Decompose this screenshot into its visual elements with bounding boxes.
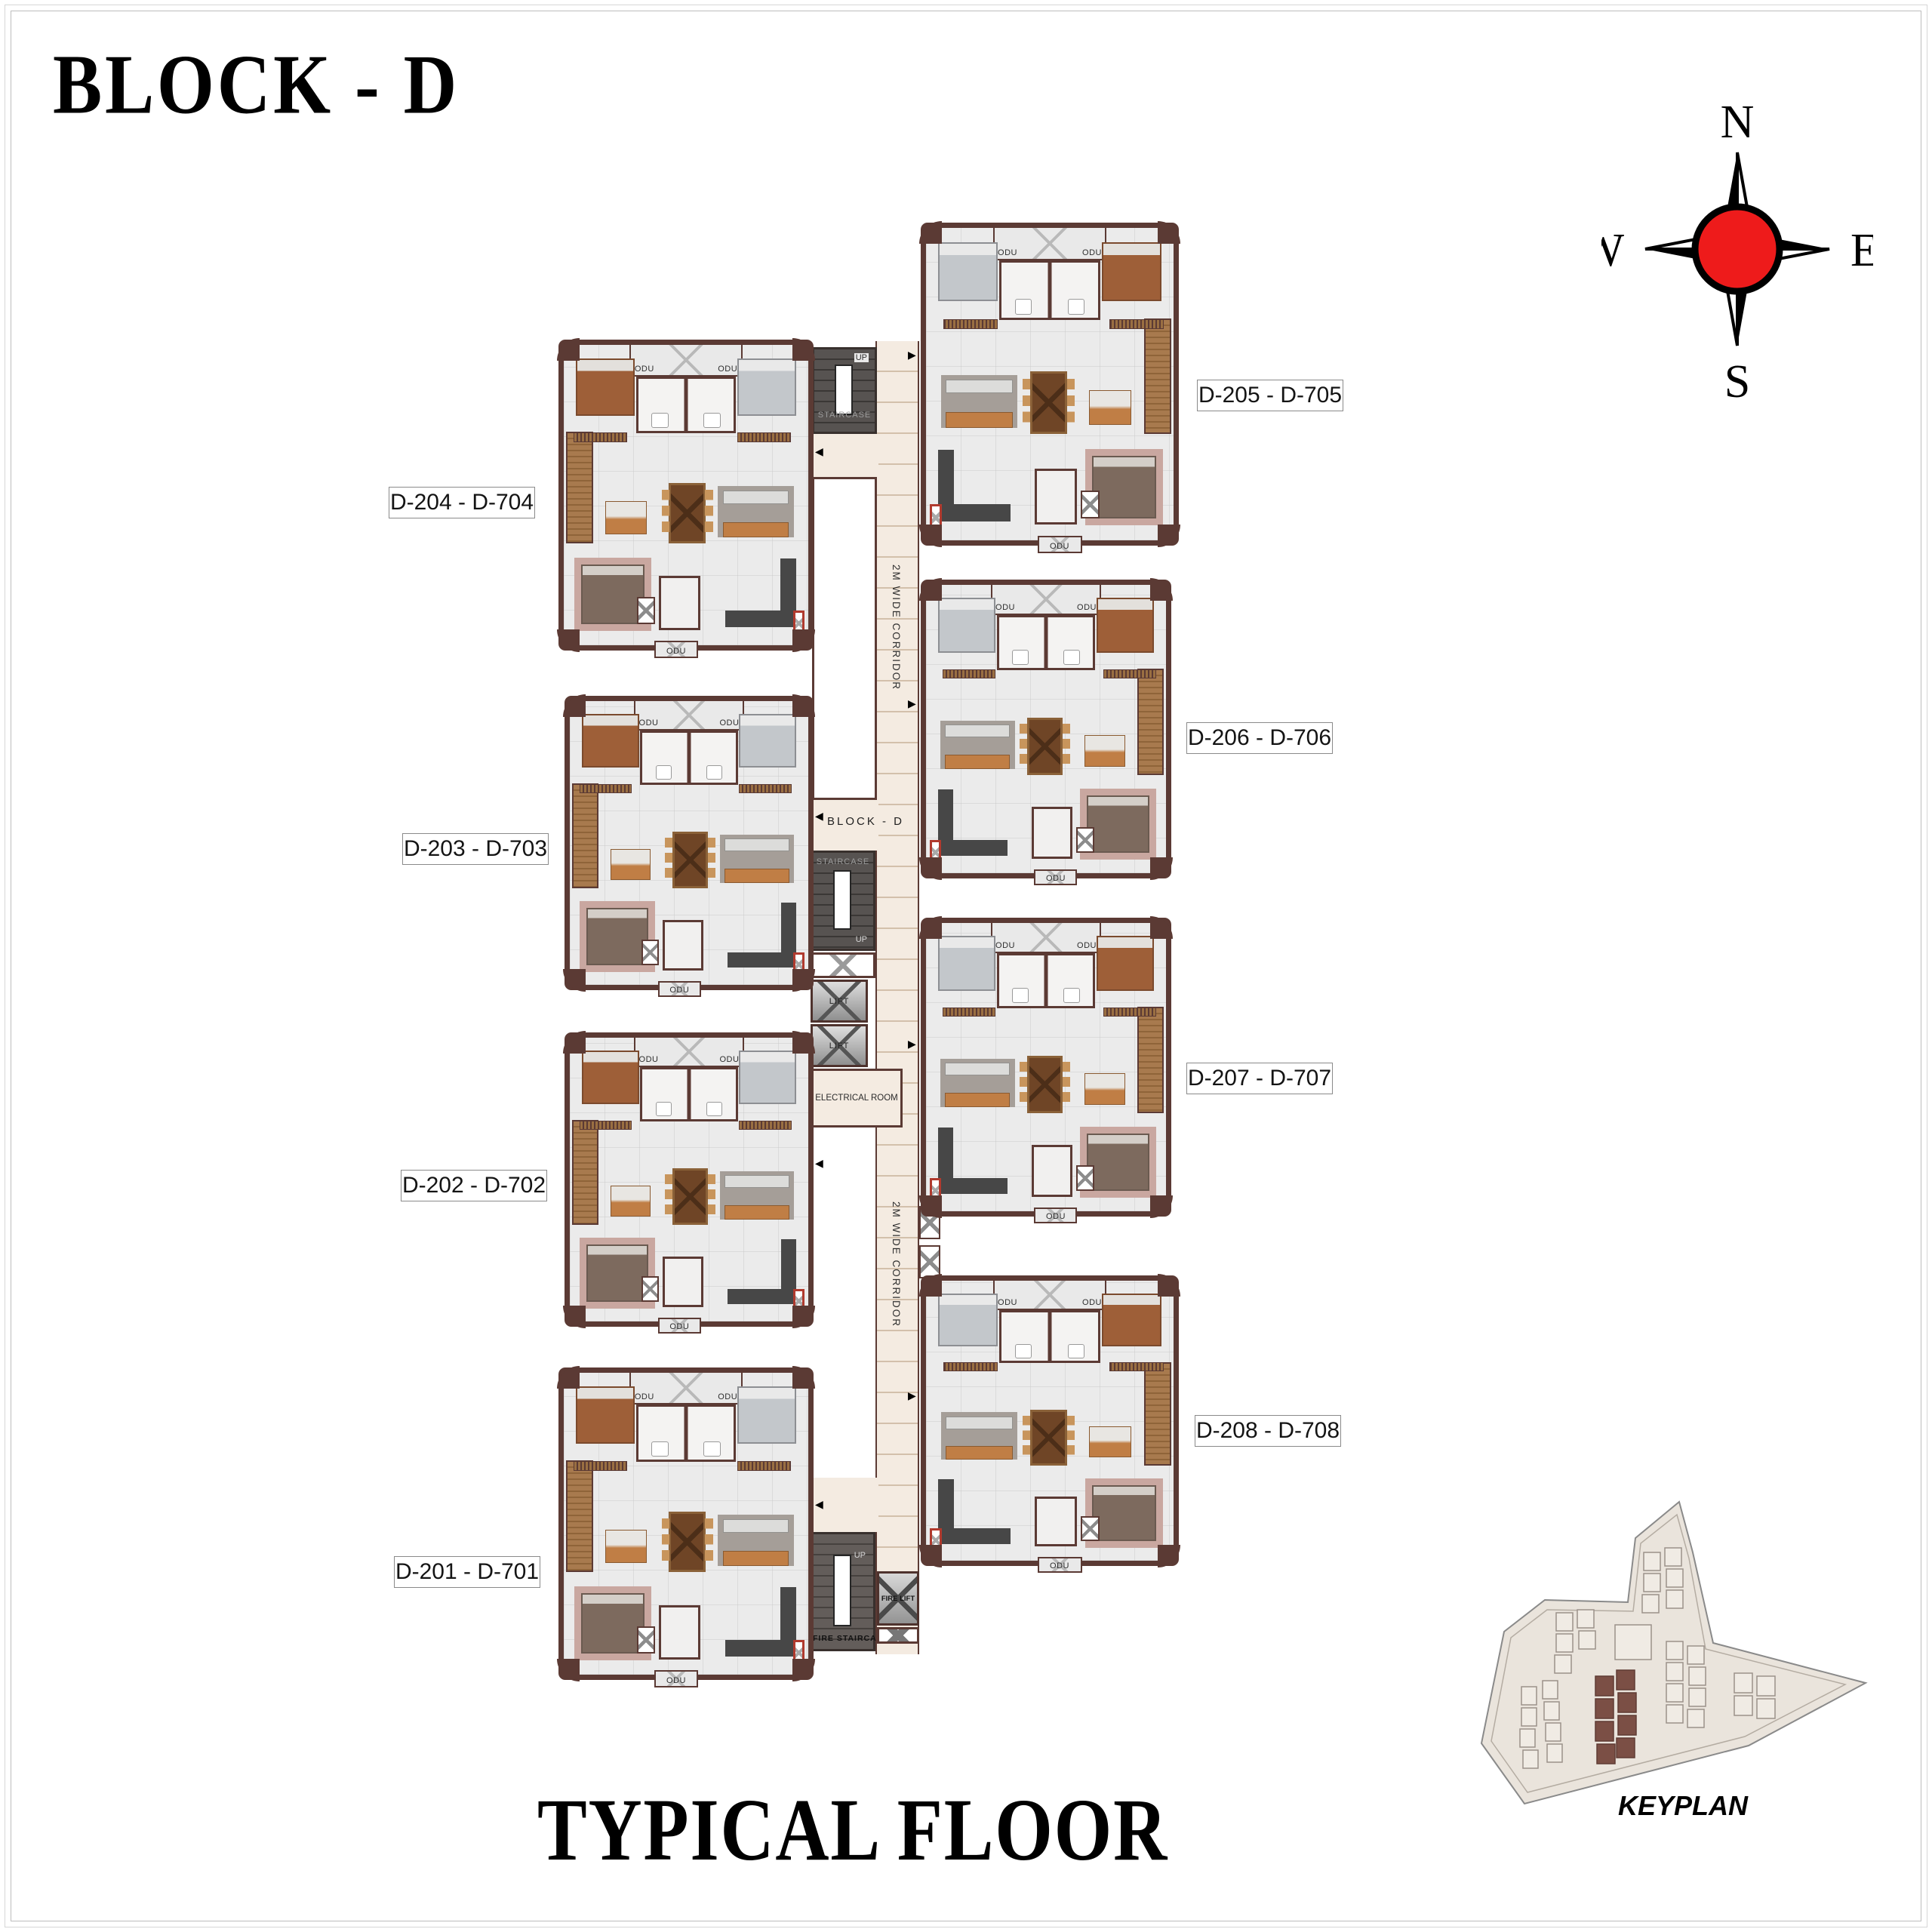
wall-flare	[563, 1306, 586, 1328]
odu-label: ODU	[1082, 248, 1102, 257]
wall-flare	[792, 1031, 815, 1054]
bed	[1102, 242, 1161, 302]
bathroom	[663, 920, 703, 971]
odu-label: ODU	[639, 1055, 659, 1064]
bathroom	[1032, 807, 1072, 859]
unit-d206: ODU ODU ODU	[921, 580, 1171, 878]
wardrobe	[737, 432, 791, 442]
entry-arrow: ▶	[908, 1390, 916, 1401]
bed	[576, 1386, 635, 1444]
wardrobe	[943, 319, 998, 329]
odu-label: ODU	[635, 365, 654, 374]
wardrobe	[1103, 1008, 1156, 1017]
staircase-top: UP STAIRCASE	[812, 347, 877, 434]
staircase-label: STAIRCASE	[814, 411, 875, 420]
wardrobe	[943, 1008, 995, 1017]
dining-table	[672, 832, 708, 888]
unit-d202: ODU ODU ODU	[565, 1032, 814, 1327]
entry-arrow: ◀	[815, 446, 823, 457]
bed	[586, 908, 648, 964]
wall-flare	[1158, 525, 1180, 547]
bed	[737, 358, 796, 416]
bed	[576, 358, 635, 416]
kitchen	[938, 1128, 1008, 1194]
unit-label-d204: D-204 - D-704	[389, 487, 535, 518]
wall-flare	[1150, 578, 1173, 601]
unit-label-d201: D-201 - D-701	[394, 1556, 540, 1588]
staircase-label: STAIRCASE	[813, 857, 873, 866]
sofa	[605, 1530, 647, 1563]
duct-shaft	[1081, 1516, 1100, 1541]
wall-flare	[563, 1031, 586, 1054]
bed	[938, 1294, 998, 1346]
wall-flare	[919, 1545, 942, 1567]
bed	[1092, 1485, 1156, 1541]
bed	[737, 1386, 796, 1444]
stair-well	[833, 1555, 851, 1626]
compass-letter-e: E	[1850, 225, 1873, 276]
wardrobe	[1109, 1362, 1164, 1371]
sofa	[723, 1551, 789, 1566]
sofa	[945, 1093, 1010, 1107]
odu-label: ODU	[995, 941, 1015, 950]
bathroom	[1032, 1145, 1072, 1197]
odu-balcony: ODU ODU	[629, 345, 742, 377]
entry-arrow: ◀	[815, 1158, 823, 1168]
dining-table	[1027, 1056, 1063, 1113]
duct-shaft	[1076, 1165, 1094, 1191]
odu-label: ODU	[998, 1298, 1017, 1307]
wardrobe	[574, 432, 627, 442]
compass-star	[1645, 152, 1829, 346]
wardrobe	[574, 1461, 627, 1471]
odu-label: ODU	[998, 248, 1017, 257]
sofa	[611, 1186, 651, 1217]
entry-arrow: ▶	[908, 698, 916, 709]
bed	[938, 598, 995, 653]
odu-label: ODU	[666, 1676, 686, 1685]
bathroom	[1035, 469, 1077, 525]
sofa	[605, 501, 647, 534]
odu-balcony: ODU ODU	[993, 228, 1107, 260]
sofa	[946, 412, 1013, 428]
bed	[938, 936, 995, 991]
odu-balcony: ODU ODU	[991, 923, 1101, 953]
odu-label: ODU	[1046, 1212, 1066, 1221]
balcony-deck	[566, 432, 593, 543]
wall-flare	[919, 221, 942, 244]
wall-flare	[557, 338, 580, 361]
fire-lift-lobby	[877, 1627, 919, 1644]
fire-staircase: UP FIRE STAIRCASE	[811, 1532, 875, 1651]
odu-balcony: ODU ODU	[634, 1038, 743, 1067]
sofa	[724, 1205, 789, 1220]
stair-well	[833, 870, 851, 930]
unit-d208: ODU ODU ODU	[921, 1275, 1179, 1566]
wall-flare	[792, 338, 815, 361]
odu-balcony: ODU	[1038, 1557, 1082, 1573]
wardrobe	[943, 1362, 998, 1371]
odu-label: ODU	[718, 1392, 737, 1401]
wall-flare	[563, 694, 586, 717]
corridor	[875, 341, 919, 1654]
odu-balcony: ODU	[1038, 536, 1082, 553]
bed	[1097, 598, 1154, 653]
bathroom	[1035, 1497, 1077, 1547]
sofa	[946, 1446, 1013, 1460]
bed	[1092, 456, 1156, 518]
dining-table	[1030, 371, 1067, 434]
kitchen	[725, 1587, 796, 1657]
bed	[581, 565, 645, 625]
kitchen	[938, 789, 1008, 856]
keyplan-title: KEYPLAN	[1618, 1790, 1749, 1821]
odu-balcony: ODU	[654, 1670, 698, 1687]
sofa	[945, 1063, 1010, 1075]
odu-label: ODU	[1077, 941, 1097, 950]
kitchen	[725, 558, 796, 628]
bed	[581, 1593, 645, 1654]
bed	[739, 714, 796, 768]
duct-shaft	[919, 1245, 940, 1278]
kitchen	[728, 1239, 797, 1304]
floor-subtitle: TYPICAL FLOOR	[388, 1780, 1318, 1881]
dining-table	[1030, 1410, 1067, 1466]
balcony-deck	[1137, 669, 1164, 775]
bathroom	[659, 576, 700, 630]
compass-rose: N E S W	[1601, 106, 1873, 408]
wardrobe	[1103, 669, 1156, 678]
sofa	[724, 1175, 789, 1188]
wall-flare	[792, 1659, 815, 1681]
duct-shaft	[1076, 827, 1094, 853]
dining-table	[1027, 718, 1063, 775]
wall-flare	[563, 969, 586, 992]
sofa	[1090, 390, 1132, 425]
unit-d204: ODU ODU ODU	[558, 340, 814, 651]
sofa	[945, 724, 1010, 737]
fire-staircase-label: FIRE STAIRCASE	[813, 1634, 873, 1643]
bathroom	[636, 1404, 737, 1462]
balcony-deck	[566, 1460, 593, 1572]
wall-flare	[557, 1659, 580, 1681]
bed	[1087, 795, 1149, 853]
block-label: BLOCK - D	[812, 815, 919, 828]
wall-flare	[792, 1306, 815, 1328]
bed	[1097, 936, 1154, 991]
sofa	[724, 838, 789, 851]
wall-flare	[1158, 1274, 1180, 1297]
entry-arrow: ◀	[815, 811, 823, 821]
unit-label-d207: D-207 - D-707	[1186, 1063, 1333, 1094]
bathroom	[640, 1067, 738, 1121]
wall-flare	[557, 1366, 580, 1389]
entry-arrow: ▶	[908, 1038, 916, 1049]
up-label: UP	[854, 1551, 866, 1560]
odu-label: ODU	[718, 365, 737, 374]
odu-label: ODU	[1077, 603, 1097, 612]
electrical-room: ELECTRICAL ROOM	[811, 1069, 903, 1128]
sofa	[723, 522, 789, 537]
odu-balcony: ODU	[1034, 1207, 1077, 1223]
open-well	[812, 477, 877, 800]
wardrobe	[580, 784, 632, 793]
unit-label-d203: D-203 - D-703	[402, 833, 549, 865]
unit-d203: ODU ODU ODU	[565, 696, 814, 990]
duct-shaft	[1081, 491, 1100, 518]
page-title: BLOCK - D	[53, 36, 460, 134]
unit-label-d205: D-205 - D-705	[1197, 380, 1343, 411]
up-label: UP	[854, 353, 869, 362]
wall-flare	[919, 578, 942, 601]
wall-flare	[1150, 857, 1173, 880]
odu-label: ODU	[1082, 1298, 1102, 1307]
wardrobe	[739, 784, 792, 793]
wardrobe	[737, 1461, 791, 1471]
compass-letter-n: N	[1721, 106, 1755, 148]
unit-label-d202: D-202 - D-702	[401, 1170, 547, 1201]
odu-balcony: ODU ODU	[629, 1373, 742, 1404]
duct-shaft	[637, 597, 655, 624]
balcony-deck	[1144, 318, 1171, 434]
wall-flare	[557, 629, 580, 652]
wardrobe	[1109, 319, 1164, 329]
kitchen	[728, 903, 797, 968]
lift-lobby	[811, 952, 875, 978]
sofa	[946, 380, 1013, 394]
bathroom	[640, 731, 738, 784]
dining-table	[672, 1168, 708, 1225]
odu-label: ODU	[669, 986, 689, 995]
corridor-width-label-top: 2M WIDE CORRIDOR	[891, 565, 902, 691]
odu-label: ODU	[1050, 1561, 1069, 1571]
unit-d205: ODU ODU ODU	[921, 223, 1179, 546]
odu-balcony: ODU ODU	[993, 1281, 1107, 1310]
wall-flare	[919, 1195, 942, 1218]
sofa	[723, 1519, 789, 1533]
wall-flare	[919, 525, 942, 547]
balcony-deck	[572, 783, 598, 888]
wall-flare	[1150, 916, 1173, 939]
lift-2: LIFT	[811, 1024, 868, 1067]
bathroom	[659, 1605, 700, 1660]
odu-balcony: ODU	[658, 981, 701, 997]
odu-label: ODU	[639, 718, 659, 728]
lift-1: LIFT	[811, 980, 868, 1023]
odu-balcony: ODU	[654, 641, 698, 657]
bed	[586, 1244, 648, 1301]
odu-balcony: ODU ODU	[634, 701, 743, 731]
entry-arrow: ▶	[908, 349, 916, 360]
bathroom	[997, 953, 1095, 1008]
wall-flare	[919, 916, 942, 939]
odu-label: ODU	[1046, 874, 1066, 883]
bed	[582, 714, 639, 768]
bed	[1087, 1134, 1149, 1191]
bathroom	[636, 377, 737, 434]
wall-flare	[919, 1274, 942, 1297]
bathroom	[999, 260, 1100, 320]
entry-arrow: ◀	[815, 1499, 823, 1509]
balcony-deck	[1137, 1007, 1164, 1113]
duct-shaft	[637, 1626, 655, 1654]
odu-label: ODU	[669, 1322, 689, 1331]
bathroom	[999, 1310, 1100, 1363]
odu-label: ODU	[719, 718, 739, 728]
duct-shaft	[641, 1276, 660, 1302]
bed	[739, 1051, 796, 1104]
keyplan: KEYPLAN	[1472, 1498, 1894, 1830]
balcony-deck	[1144, 1362, 1171, 1466]
odu-label: ODU	[1050, 542, 1069, 551]
compass-letter-s: S	[1724, 356, 1750, 408]
wardrobe	[580, 1121, 632, 1130]
sofa	[1084, 735, 1125, 767]
odu-balcony: ODU	[658, 1318, 701, 1334]
odu-label: ODU	[635, 1392, 654, 1401]
duct-shaft	[641, 940, 660, 965]
wardrobe	[739, 1121, 792, 1130]
wall-flare	[1150, 1195, 1173, 1218]
unit-label-d208: D-208 - D-708	[1195, 1415, 1341, 1447]
odu-balcony: ODU	[1034, 869, 1077, 885]
compass-letter-w: W	[1601, 225, 1624, 276]
wall-flare	[792, 694, 815, 717]
sofa	[1084, 1073, 1125, 1105]
kitchen	[938, 450, 1010, 521]
bed	[1102, 1294, 1161, 1346]
sofa	[611, 849, 651, 880]
sofa	[724, 869, 789, 883]
fire-lift: FIRE LIFT	[877, 1571, 919, 1626]
staircase-mid: STAIRCASE UP	[811, 851, 875, 951]
balcony-deck	[572, 1120, 598, 1225]
floor-plan-sheet: BLOCK - D TYPICAL FLOOR N E S W UP STAIR…	[0, 0, 1932, 1932]
unit-d207: ODU ODU ODU	[921, 918, 1171, 1217]
odu-label: ODU	[995, 603, 1015, 612]
bathroom	[663, 1257, 703, 1308]
wall-flare	[919, 857, 942, 880]
bed	[582, 1051, 639, 1104]
bathroom	[997, 615, 1095, 670]
sofa	[946, 1417, 1013, 1429]
unit-d201: ODU ODU ODU	[558, 1367, 814, 1680]
wall-flare	[792, 1366, 815, 1389]
sofa	[945, 755, 1010, 769]
odu-balcony: ODU ODU	[991, 585, 1101, 615]
bed	[938, 242, 998, 302]
sofa	[1090, 1426, 1132, 1457]
unit-label-d206: D-206 - D-706	[1186, 722, 1333, 754]
odu-label: ODU	[666, 647, 686, 656]
dining-table	[669, 483, 706, 543]
odu-label: ODU	[719, 1055, 739, 1064]
wall-flare	[1158, 221, 1180, 244]
sofa	[723, 491, 789, 504]
dining-table	[669, 1512, 706, 1572]
wall-flare	[1158, 1545, 1180, 1567]
kitchen	[938, 1479, 1010, 1543]
wardrobe	[943, 669, 995, 678]
corridor-width-label-bottom: 2M WIDE CORRIDOR	[891, 1201, 902, 1327]
up-label: UP	[856, 935, 867, 944]
stair-well	[835, 365, 853, 416]
